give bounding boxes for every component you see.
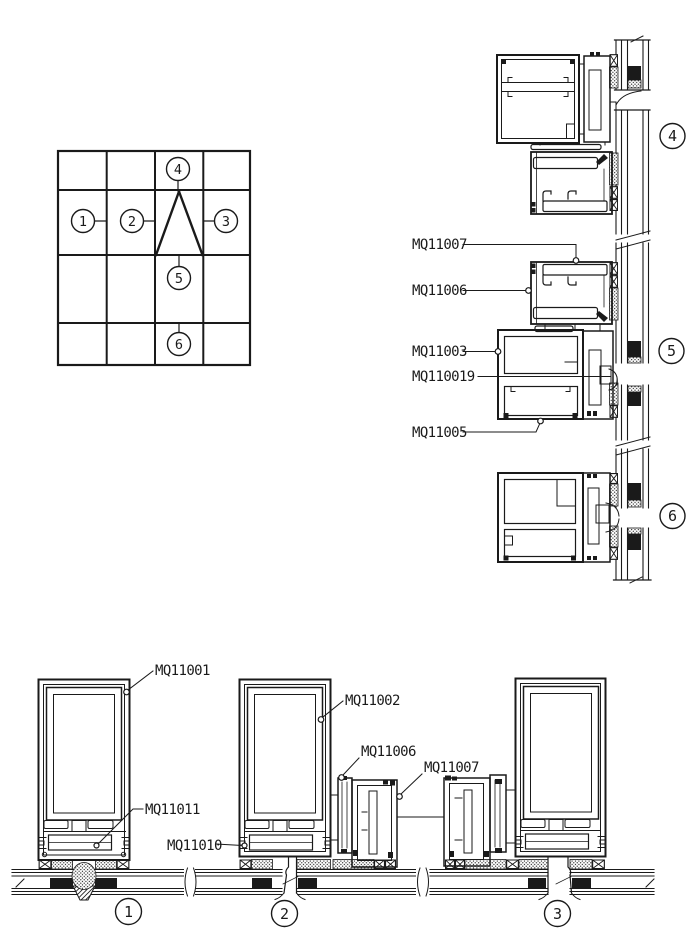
sealant-insulation-strips [610, 55, 619, 560]
section-marker-6-label: 6 [668, 507, 677, 525]
key-plan: 1 2 3 4 5 6 [58, 151, 250, 365]
detail-drawing-canvas: 1 2 3 4 5 6 [0, 0, 700, 944]
bottom-detail-labels: MQ11001 MQ11002 MQ11006 MQ11007 MQ11011 … [94, 663, 479, 854]
detail-1-mullion [39, 680, 130, 861]
detail-5-section [498, 262, 617, 419]
leader-dot-mq11001 [124, 689, 130, 695]
label-mq11005: MQ11005 [412, 425, 467, 441]
detail-6-section [498, 473, 619, 562]
label-mq11006-bottom: MQ11006 [361, 744, 416, 760]
label-mq11003: MQ11003 [412, 344, 467, 360]
leader-dot-mq11002 [318, 717, 324, 723]
label-mq11010: MQ11010 [167, 838, 222, 854]
label-mq11007: MQ11007 [412, 237, 467, 253]
curtain-wall-detail-sheet: 1 2 3 4 5 6 [0, 0, 700, 944]
label-mq11007-bottom: MQ11007 [424, 760, 479, 776]
right-detail-labels: MQ11007 MQ11006 MQ11003 MQ110019 MQ11005 [412, 237, 610, 441]
key-plan-marker-5-label: 5 [175, 271, 183, 287]
label-mq11002: MQ11002 [345, 693, 400, 709]
key-plan-marker-4-label: 4 [174, 162, 182, 178]
leader-dot-mq11006 [526, 288, 532, 294]
label-mq11006: MQ11006 [412, 283, 467, 299]
key-plan-marker-2-label: 2 [128, 214, 136, 230]
vent-frames-plan [331, 775, 516, 867]
section-marker-3-label: 3 [553, 905, 562, 923]
section-marker-2-label: 2 [280, 905, 289, 923]
section-marker-4-label: 4 [668, 127, 677, 145]
detail-4-section [497, 52, 641, 214]
vertical-section-details: MQ11007 MQ11006 MQ11003 MQ110019 MQ11005… [412, 36, 685, 583]
key-plan-marker-1-label: 1 [79, 214, 87, 230]
key-plan-marker-6-label: 6 [175, 337, 183, 353]
leader-dot-mq11011 [94, 843, 99, 848]
section-marker-1-label: 1 [124, 903, 133, 921]
leader-dot-mq11005 [538, 418, 544, 424]
leader-dot-mq11007-bottom [397, 794, 403, 800]
leader-dot-mq11007 [573, 258, 579, 264]
label-mq11001: MQ11001 [155, 663, 210, 679]
key-plan-marker-3-label: 3 [222, 214, 230, 230]
label-mq110019: MQ110019 [412, 369, 475, 385]
opening-triangle-symbol [156, 192, 203, 256]
horizontal-section-details: MQ11001 MQ11002 MQ11006 MQ11007 MQ11011 … [12, 663, 654, 927]
leader-dot-mq11006-bottom [339, 775, 345, 781]
section-marker-5-label: 5 [667, 342, 676, 360]
leader-dot-mq11010 [242, 843, 247, 848]
label-mq11011: MQ11011 [145, 802, 200, 818]
leader-dot-mq11003 [495, 349, 501, 355]
